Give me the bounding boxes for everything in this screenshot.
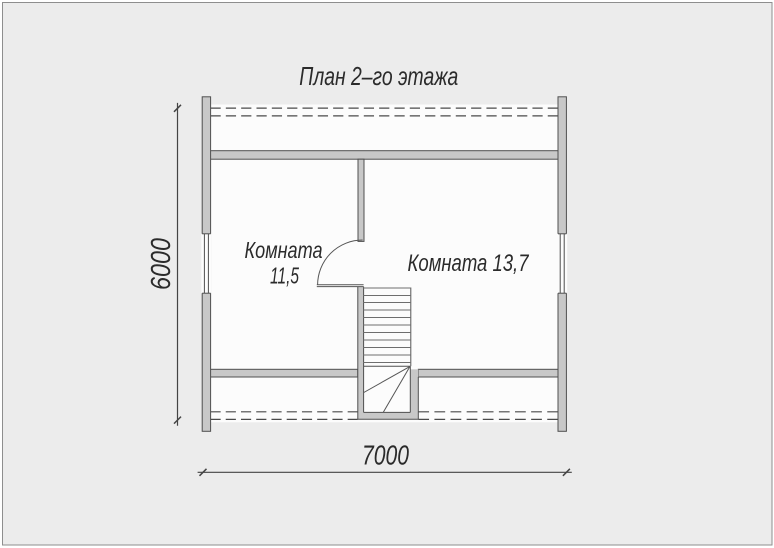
svg-text:6000: 6000 <box>145 237 176 290</box>
svg-text:7000: 7000 <box>362 440 410 471</box>
svg-text:План 2–го этажа: План 2–го этажа <box>299 61 458 91</box>
svg-text:Комната: Комната <box>245 237 323 263</box>
svg-text:Комната 13,7: Комната 13,7 <box>408 250 530 277</box>
svg-text:11,5: 11,5 <box>270 263 299 289</box>
